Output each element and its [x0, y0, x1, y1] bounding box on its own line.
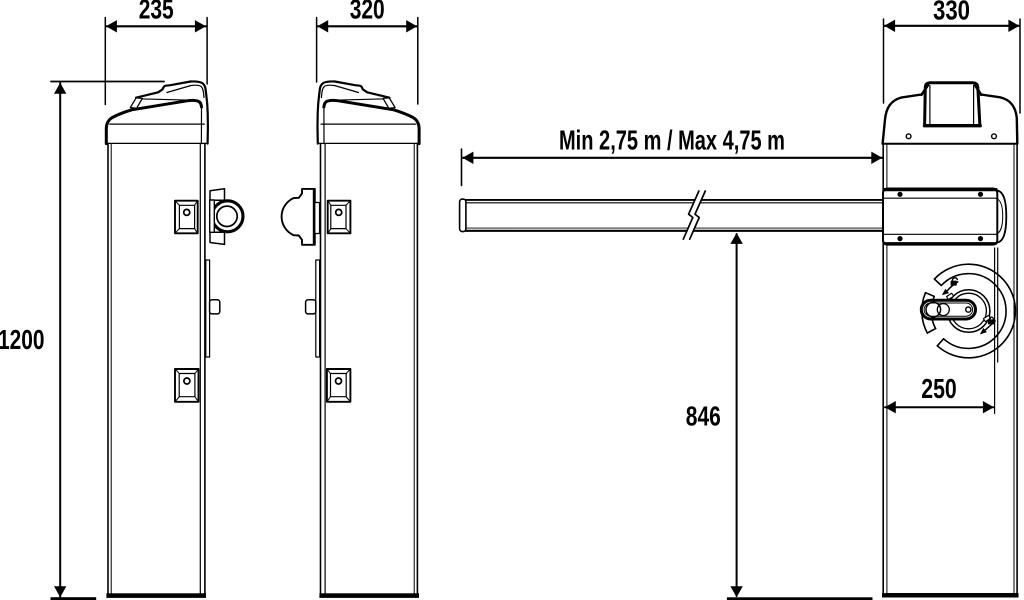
svg-text:250: 250: [921, 373, 957, 404]
svg-text:320: 320: [350, 0, 385, 24]
svg-text:Min 2,75 m / Max 4,75 m: Min 2,75 m / Max 4,75 m: [559, 124, 785, 155]
svg-text:330: 330: [933, 0, 970, 26]
svg-text:846: 846: [686, 401, 721, 432]
svg-text:235: 235: [139, 0, 174, 24]
svg-text:1200: 1200: [0, 324, 45, 355]
